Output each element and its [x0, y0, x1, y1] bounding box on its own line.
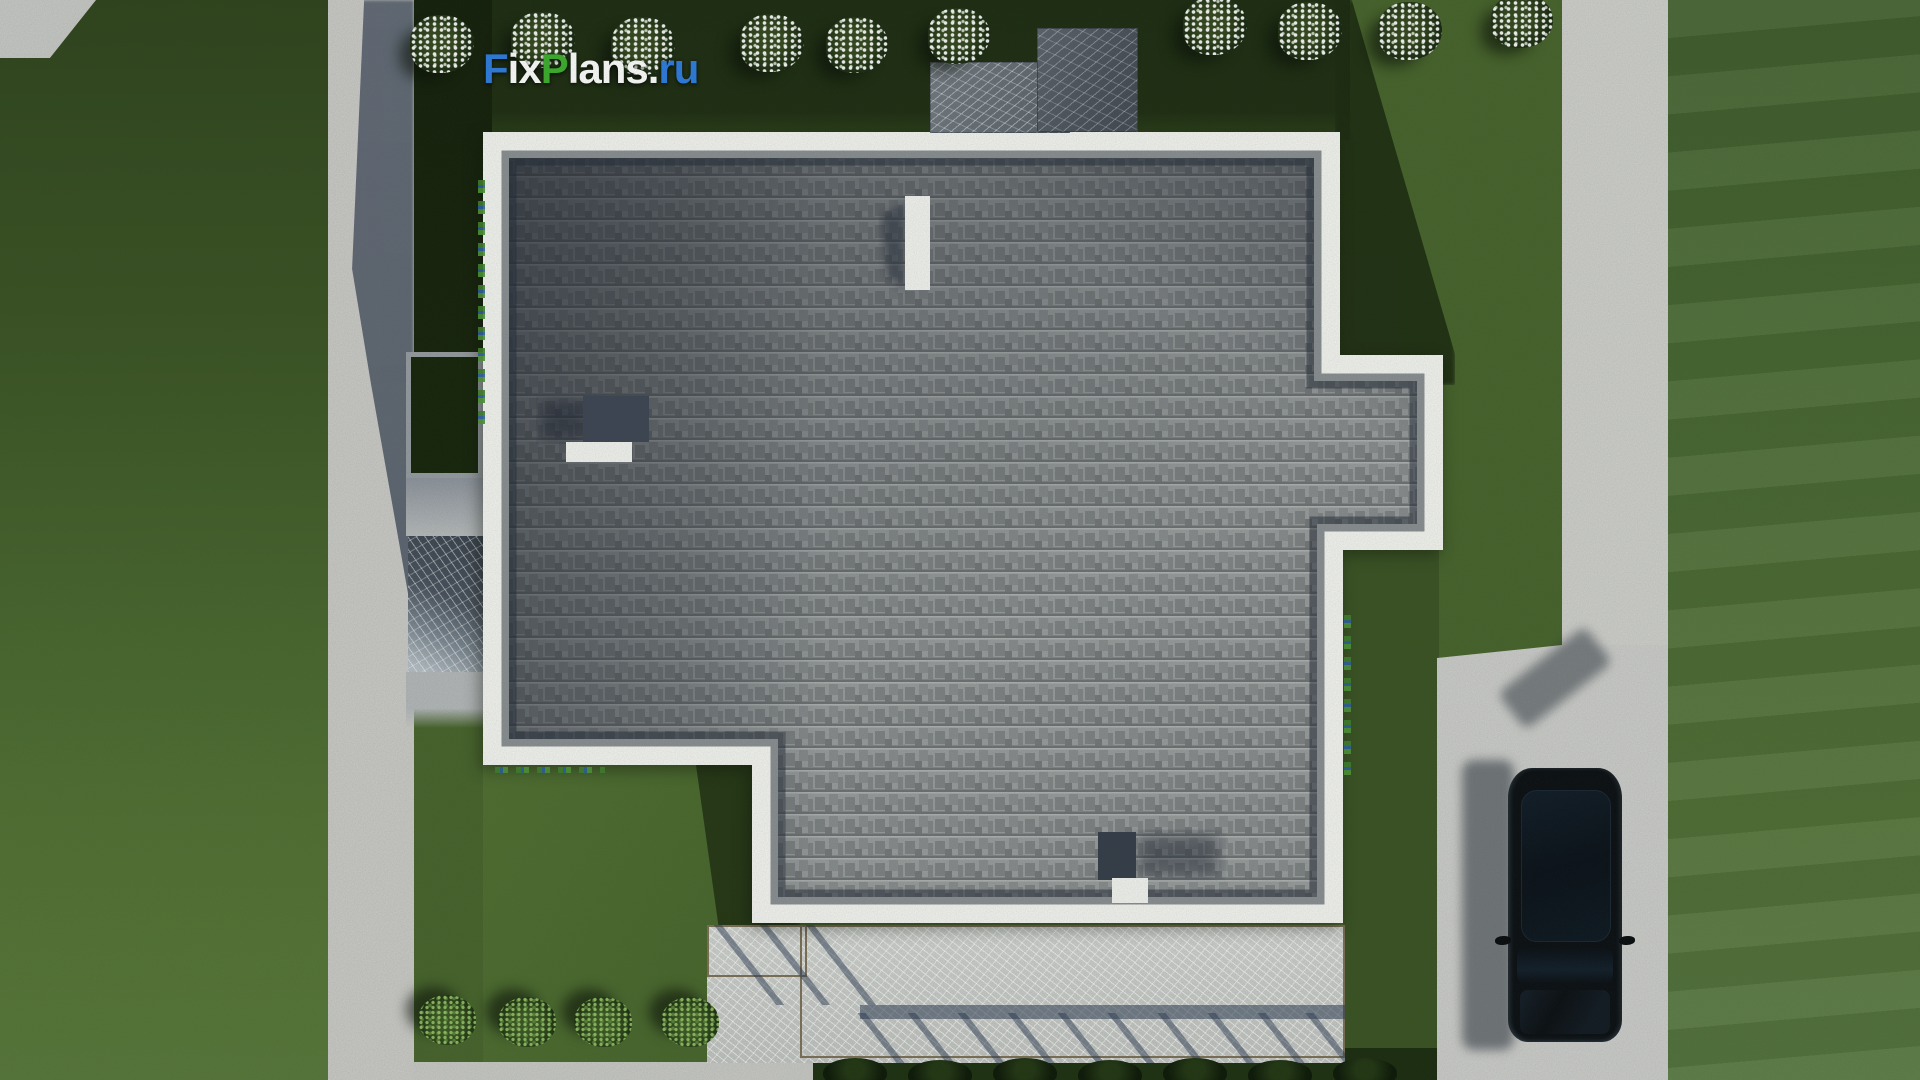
parked-car	[1508, 768, 1622, 1042]
chimney-left-shadow	[541, 400, 589, 440]
roof-shade-topright	[509, 158, 1417, 897]
porch-planting-bed	[406, 352, 483, 478]
car-mirror-left	[1495, 936, 1511, 945]
logo-segment: ru	[658, 45, 698, 92]
roof-hatch	[566, 442, 632, 462]
shaded-bush	[993, 1058, 1057, 1080]
roof-vent	[905, 196, 930, 290]
chimney-bottom-shadow	[1138, 834, 1218, 876]
chimney-slab-right	[1037, 28, 1138, 132]
porch-walkway-lower	[406, 672, 483, 728]
lawn-right	[1668, 0, 1920, 1080]
green-bush	[498, 997, 556, 1047]
terrace-patio	[707, 925, 1345, 1063]
logo-segment: ix	[508, 45, 541, 92]
chimney-bottom	[1098, 832, 1136, 880]
shaded-bush	[823, 1058, 887, 1080]
logo-segment: .	[648, 45, 659, 92]
porch-walkway-upper	[406, 478, 483, 536]
flower-bed-right	[1344, 615, 1351, 775]
green-bush	[418, 995, 476, 1045]
pergola-beam-shadow	[860, 1005, 1345, 1019]
parapet-scupper	[1112, 878, 1148, 903]
logo-segment: F	[483, 45, 508, 92]
site-plan-render: FixPlans.ru	[0, 0, 1920, 1080]
house-roof	[483, 132, 1443, 923]
logo-segment: P	[541, 45, 568, 92]
shaded-bush	[1163, 1058, 1227, 1080]
flowering-shrub	[1491, 0, 1553, 48]
flowering-shrub	[1378, 2, 1442, 60]
brand-logo: FixPlans.ru	[483, 48, 698, 90]
logo-segment: lans	[568, 45, 648, 92]
green-bush	[574, 997, 632, 1047]
flower-bed-bottom	[495, 767, 605, 773]
green-bush	[661, 997, 719, 1047]
path-bottom	[413, 1062, 813, 1080]
car-roof-panel	[1521, 790, 1611, 942]
flower-bed-left	[478, 180, 485, 430]
car-mirror-right	[1619, 936, 1635, 945]
car-windshield	[1517, 948, 1613, 984]
car-hood	[1520, 990, 1610, 1034]
porch-marble-slab	[408, 536, 483, 672]
car-shadow	[1462, 760, 1514, 1050]
chimney-left	[583, 396, 649, 442]
path-right	[1562, 0, 1668, 648]
shaded-bush	[1333, 1058, 1397, 1080]
